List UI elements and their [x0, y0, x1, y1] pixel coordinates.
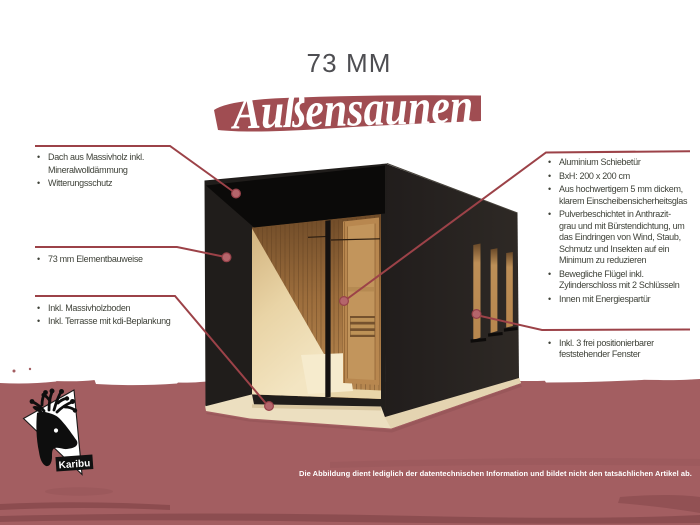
svg-text:Karibu: Karibu: [58, 458, 90, 471]
